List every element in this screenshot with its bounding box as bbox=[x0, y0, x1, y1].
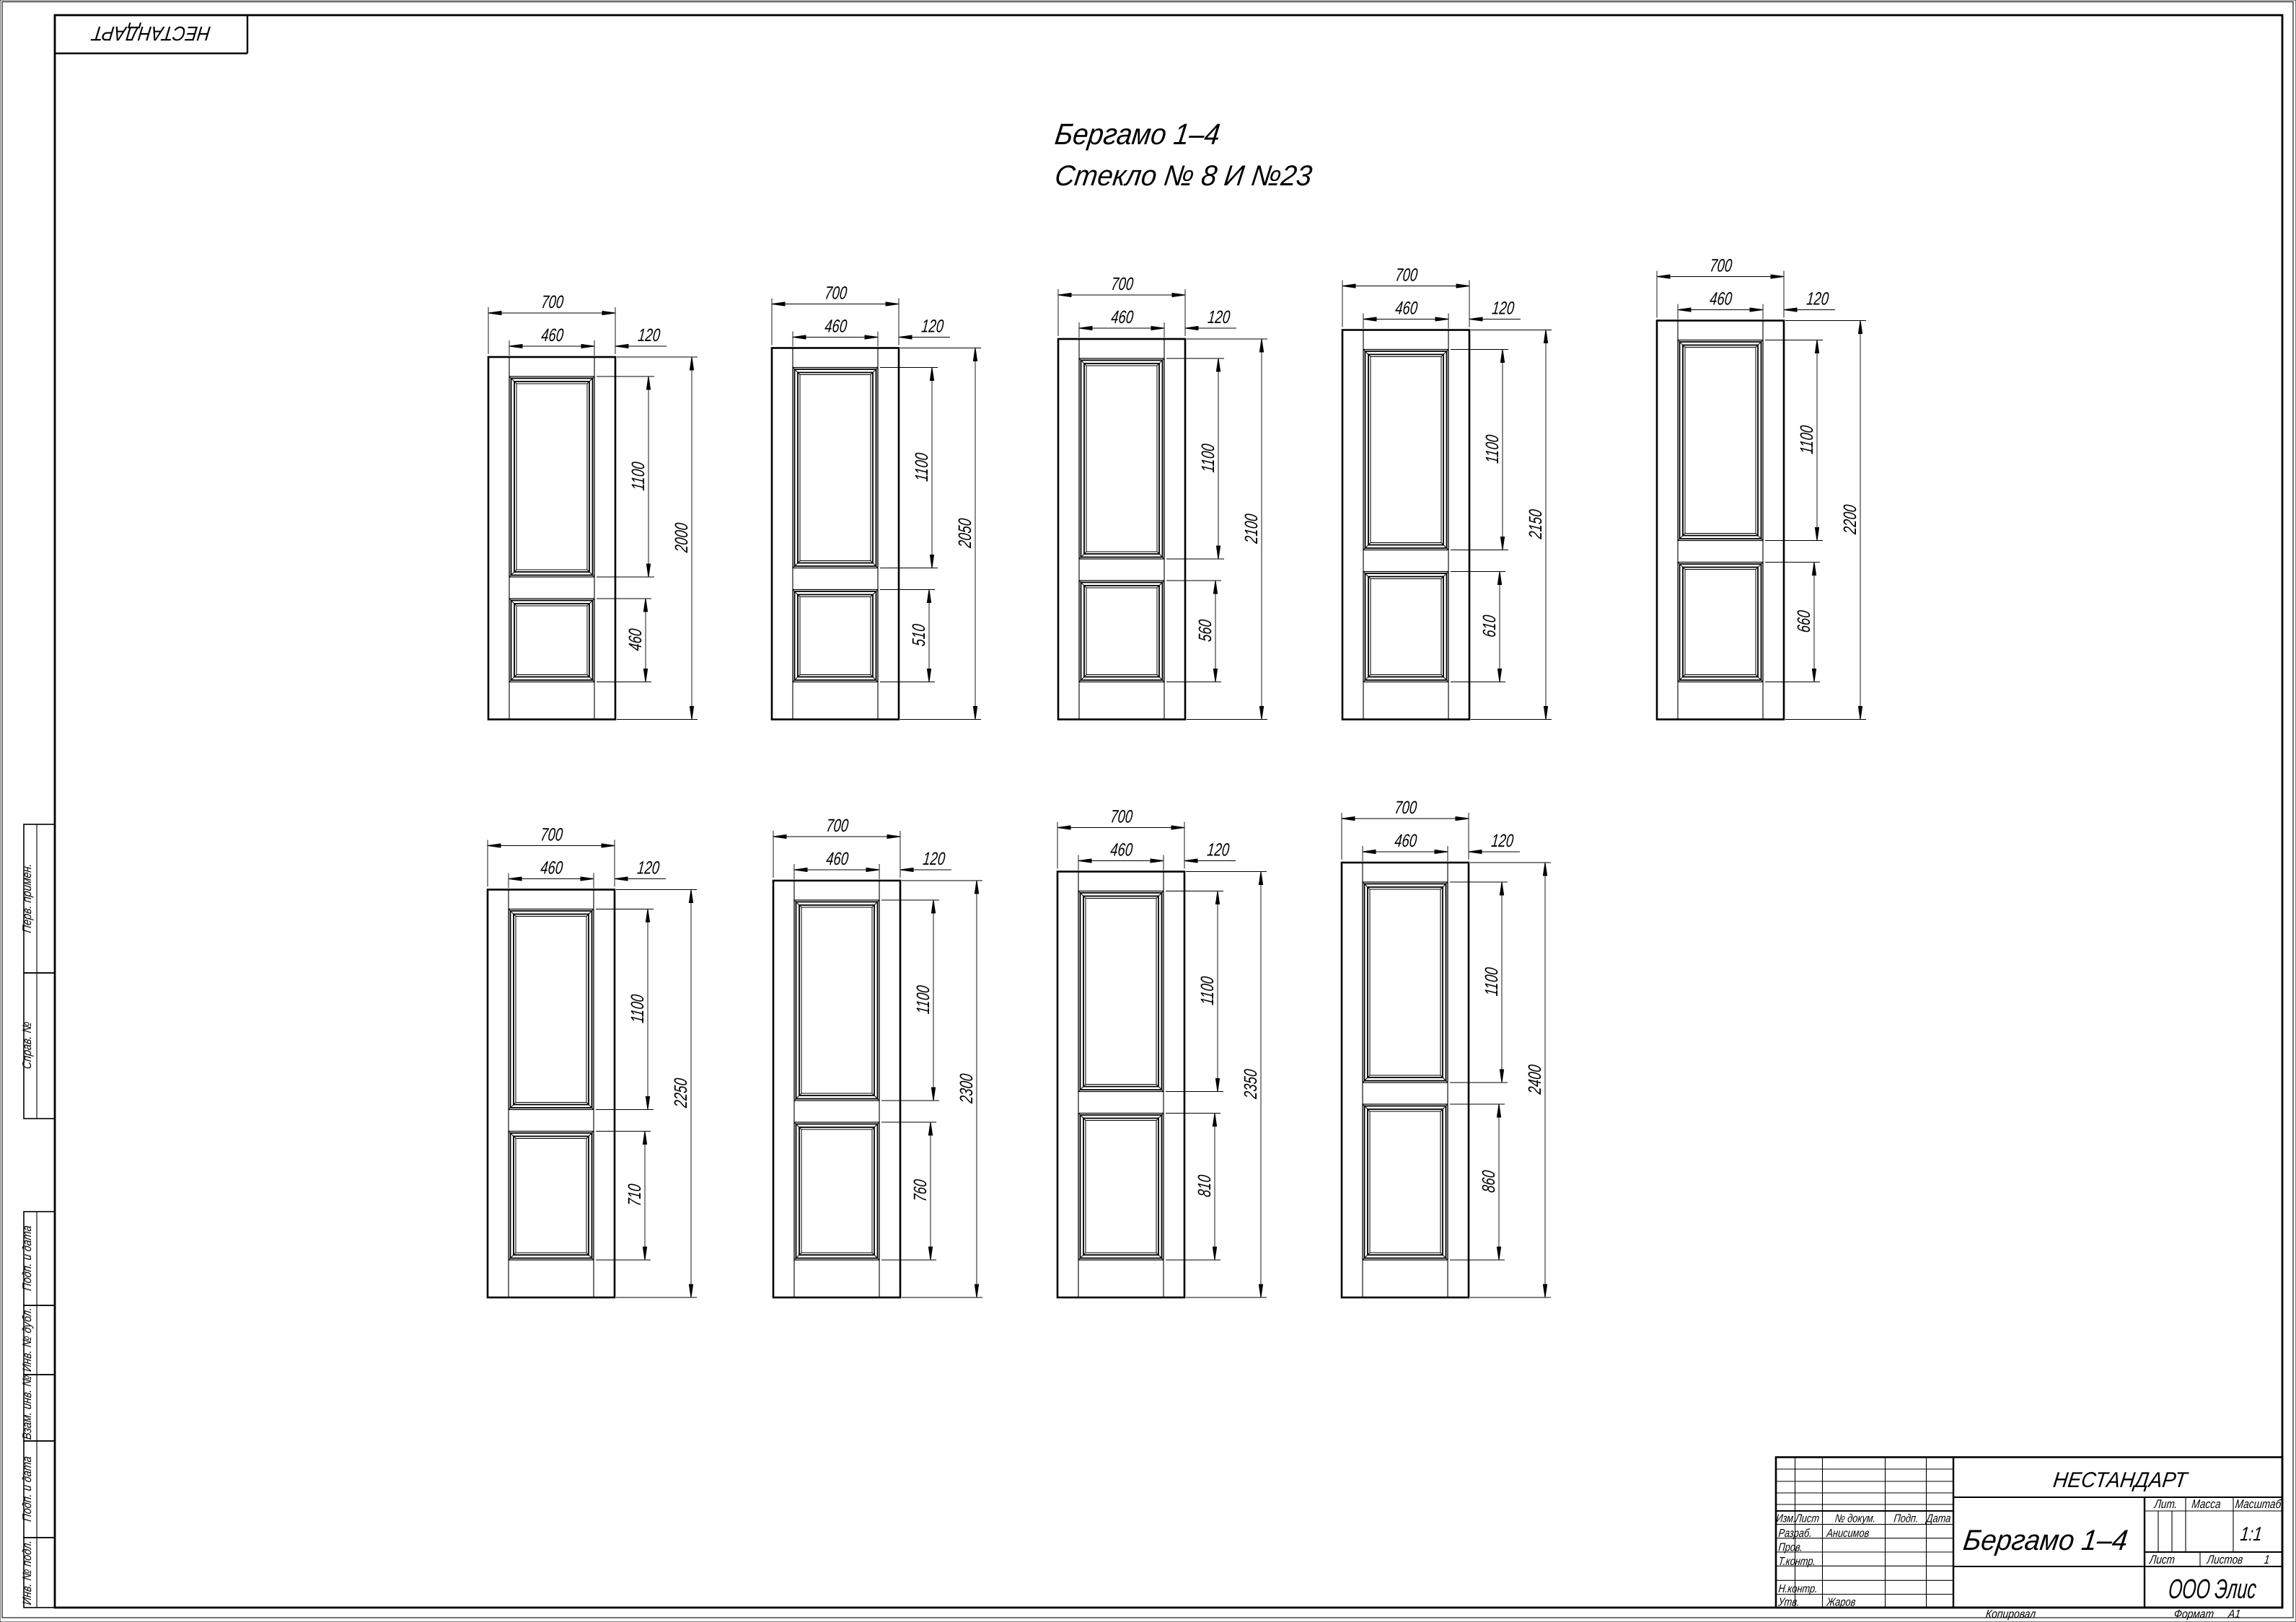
svg-text:Лист: Лист bbox=[2148, 1553, 2176, 1567]
svg-text:Дата: Дата bbox=[1925, 1512, 1951, 1525]
svg-text:1100: 1100 bbox=[911, 451, 931, 482]
svg-text:560: 560 bbox=[1195, 618, 1215, 643]
svg-text:Утв.: Утв. bbox=[1777, 1596, 1800, 1609]
svg-text:2250: 2250 bbox=[670, 1077, 690, 1109]
svg-text:1100: 1100 bbox=[627, 993, 647, 1024]
svg-text:Лит.: Лит. bbox=[2153, 1498, 2178, 1512]
svg-text:700: 700 bbox=[824, 283, 848, 303]
svg-text:120: 120 bbox=[1206, 839, 1231, 860]
svg-text:1100: 1100 bbox=[1197, 442, 1218, 473]
svg-text:460: 460 bbox=[540, 325, 565, 345]
svg-text:120: 120 bbox=[1805, 288, 1830, 309]
svg-text:460: 460 bbox=[1110, 307, 1135, 327]
svg-text:860: 860 bbox=[1478, 1169, 1498, 1194]
svg-text:460: 460 bbox=[1394, 830, 1418, 850]
svg-text:610: 610 bbox=[1479, 614, 1499, 638]
svg-text:120: 120 bbox=[1207, 307, 1231, 327]
svg-text:Разраб.: Разраб. bbox=[1778, 1528, 1813, 1541]
svg-text:2400: 2400 bbox=[1524, 1063, 1544, 1096]
svg-text:700: 700 bbox=[1394, 797, 1418, 817]
svg-text:700: 700 bbox=[540, 824, 564, 845]
svg-text:2200: 2200 bbox=[1839, 503, 1860, 536]
svg-text:120: 120 bbox=[636, 858, 661, 878]
svg-text:120: 120 bbox=[920, 316, 945, 336]
svg-text:460: 460 bbox=[540, 858, 564, 878]
svg-text:460: 460 bbox=[1109, 839, 1134, 860]
svg-text:Стекло № 8 И №23: Стекло № 8 И №23 bbox=[1053, 160, 1314, 192]
svg-text:710: 710 bbox=[624, 1183, 644, 1207]
svg-text:460: 460 bbox=[1709, 288, 1733, 309]
svg-text:1100: 1100 bbox=[1197, 975, 1217, 1006]
svg-text:460: 460 bbox=[625, 627, 645, 652]
svg-text:460: 460 bbox=[824, 316, 848, 336]
svg-text:А1: А1 bbox=[2227, 1608, 2241, 1621]
svg-text:Масса: Масса bbox=[2191, 1498, 2222, 1512]
svg-text:Инв. № дубл.: Инв. № дубл. bbox=[21, 1307, 34, 1372]
svg-text:700: 700 bbox=[1110, 273, 1135, 294]
svg-text:Подп. и дата: Подп. и дата bbox=[21, 1455, 34, 1522]
svg-text:Перв. примен.: Перв. примен. bbox=[21, 863, 34, 933]
svg-text:2000: 2000 bbox=[671, 521, 691, 554]
svg-text:700: 700 bbox=[1109, 806, 1134, 827]
svg-text:Лист: Лист bbox=[1794, 1512, 1820, 1525]
svg-text:Жаров: Жаров bbox=[1826, 1596, 1857, 1609]
svg-text:120: 120 bbox=[637, 325, 661, 345]
svg-text:Бергамо 1–4: Бергамо 1–4 bbox=[1053, 118, 1222, 151]
svg-text:Анисимов: Анисимов bbox=[1826, 1528, 1870, 1541]
svg-text:Копировал: Копировал bbox=[1985, 1608, 2037, 1621]
svg-text:Н.контр.: Н.контр. bbox=[1778, 1583, 1818, 1596]
svg-text:Взам. инв. №: Взам. инв. № bbox=[21, 1375, 34, 1440]
svg-text:Пров.: Пров. bbox=[1778, 1541, 1804, 1554]
svg-text:700: 700 bbox=[825, 815, 850, 835]
svg-text:НЕСТАНДАРТ: НЕСТАНДАРТ bbox=[89, 22, 211, 45]
svg-text:Формат: Формат bbox=[2173, 1608, 2214, 1621]
svg-text:460: 460 bbox=[1394, 298, 1419, 318]
svg-text:460: 460 bbox=[825, 848, 850, 868]
svg-text:1100: 1100 bbox=[628, 460, 648, 491]
svg-text:ООО Элис: ООО Элис bbox=[2167, 1574, 2257, 1605]
svg-text:Масштаб: Масштаб bbox=[2235, 1498, 2283, 1512]
svg-text:2100: 2100 bbox=[1241, 513, 1261, 545]
svg-text:НЕСТАНДАРТ: НЕСТАНДАРТ bbox=[2051, 1468, 2190, 1492]
svg-text:700: 700 bbox=[1709, 255, 1733, 276]
svg-text:660: 660 bbox=[1793, 609, 1813, 633]
svg-text:120: 120 bbox=[1490, 830, 1515, 850]
svg-text:Справ. №: Справ. № bbox=[21, 1021, 34, 1070]
svg-text:Подп.: Подп. bbox=[1893, 1512, 1919, 1525]
svg-text:2300: 2300 bbox=[956, 1072, 976, 1105]
svg-text:760: 760 bbox=[910, 1178, 930, 1202]
svg-text:1100: 1100 bbox=[1796, 424, 1816, 455]
svg-text:2150: 2150 bbox=[1525, 508, 1545, 540]
svg-text:Бергамо 1–4: Бергамо 1–4 bbox=[1961, 1525, 2129, 1556]
svg-text:2350: 2350 bbox=[1240, 1068, 1260, 1101]
svg-text:700: 700 bbox=[1394, 265, 1419, 285]
svg-text:Инв. № подл.: Инв. № подл. bbox=[21, 1540, 34, 1606]
svg-text:1100: 1100 bbox=[912, 984, 933, 1015]
svg-text:Листов: Листов bbox=[2206, 1553, 2243, 1567]
svg-text:Т.контр.: Т.контр. bbox=[1778, 1556, 1817, 1569]
svg-text:Изм.: Изм. bbox=[1775, 1512, 1796, 1525]
svg-text:700: 700 bbox=[540, 291, 565, 312]
svg-text:510: 510 bbox=[908, 622, 928, 647]
svg-text:120: 120 bbox=[1491, 298, 1516, 318]
svg-text:1:1: 1:1 bbox=[2239, 1524, 2263, 1546]
svg-text:№ докум.: № докум. bbox=[1834, 1512, 1876, 1525]
svg-text:1100: 1100 bbox=[1481, 966, 1501, 997]
svg-text:Подп. и дата: Подп. и дата bbox=[21, 1225, 34, 1292]
svg-text:810: 810 bbox=[1194, 1173, 1214, 1198]
svg-text:1100: 1100 bbox=[1482, 433, 1502, 464]
svg-text:120: 120 bbox=[922, 848, 946, 868]
svg-text:2050: 2050 bbox=[954, 517, 975, 550]
